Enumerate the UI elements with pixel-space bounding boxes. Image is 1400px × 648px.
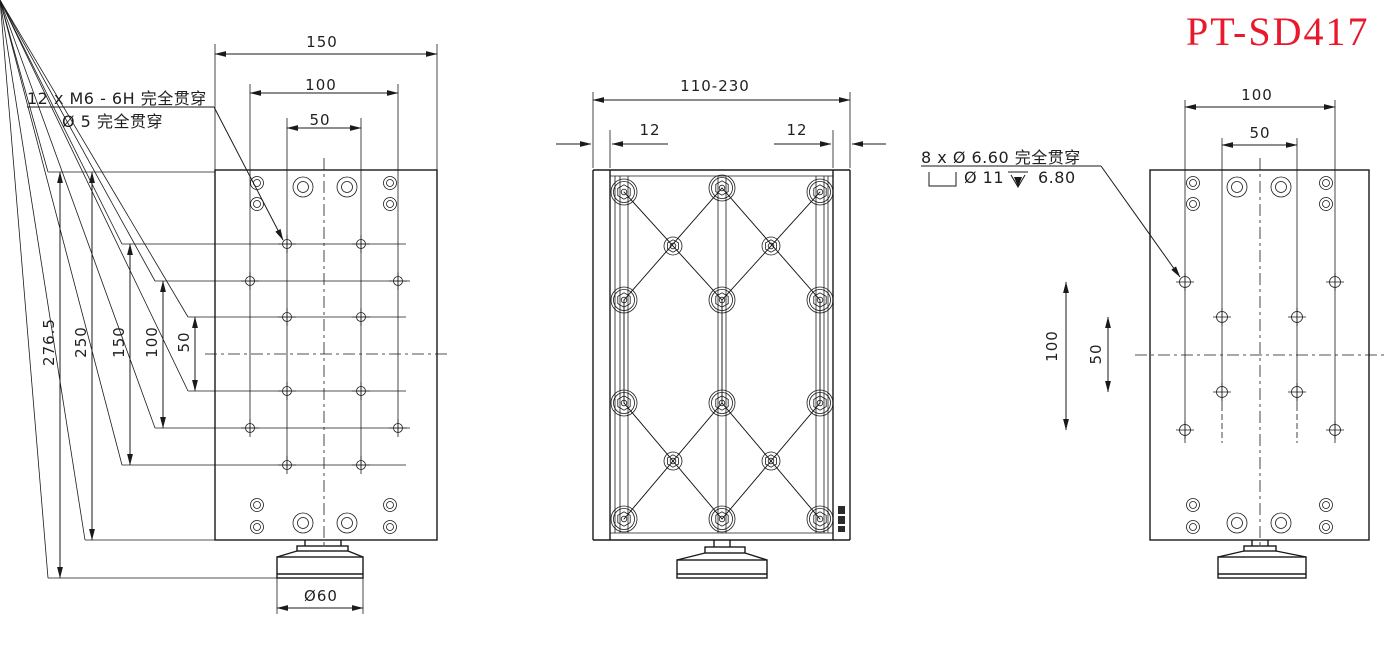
dim-base-diameter: Ø60 <box>304 587 338 605</box>
dim-left-width-100: 100 <box>305 76 337 94</box>
dimension-lines <box>27 54 1335 614</box>
dim-right-height-100: 100 <box>1043 330 1061 362</box>
brand-mark-icon <box>838 526 845 532</box>
scissor-front-view <box>593 170 850 578</box>
drawing-canvas <box>0 0 1400 648</box>
note-tapped-holes-line1: 12 x M6 - 6H 完全贯穿 <box>27 85 207 109</box>
note-cbore-diameter: Ø 11 <box>964 168 1004 187</box>
dim-right-height-50: 50 <box>1087 343 1105 364</box>
note-cbore-holes-line1: 8 x Ø 6.60 完全贯穿 <box>921 144 1081 168</box>
dim-left-height-50: 50 <box>175 331 193 352</box>
brand-mark-icon <box>838 516 845 524</box>
drawing-sheet: PT-SD417 150 100 50 276.5 250 150 100 50… <box>0 0 1400 648</box>
dim-left-width-50: 50 <box>309 111 330 129</box>
dim-travel-range: 110-230 <box>680 77 750 95</box>
dim-left-width-150: 150 <box>306 33 338 51</box>
depth-icon <box>1008 172 1028 187</box>
part-number-title: PT-SD417 <box>1186 8 1369 55</box>
dim-left-height-150: 150 <box>110 326 128 358</box>
dim-offset-left-12: 12 <box>639 121 660 139</box>
note-cbore-depth-value: 6.80 <box>1038 168 1076 187</box>
dim-left-height-250: 250 <box>72 326 90 358</box>
dim-offset-right-12: 12 <box>786 121 807 139</box>
dim-left-height-overall: 276.5 <box>40 318 58 366</box>
dim-left-height-100: 100 <box>143 326 161 358</box>
brand-mark-icon <box>838 506 845 514</box>
counterbore-icon <box>929 172 956 186</box>
note-tapped-holes-line2: Ø 5 完全贯穿 <box>62 108 163 132</box>
dim-right-width-50: 50 <box>1249 124 1270 142</box>
dim-right-width-100: 100 <box>1241 86 1273 104</box>
